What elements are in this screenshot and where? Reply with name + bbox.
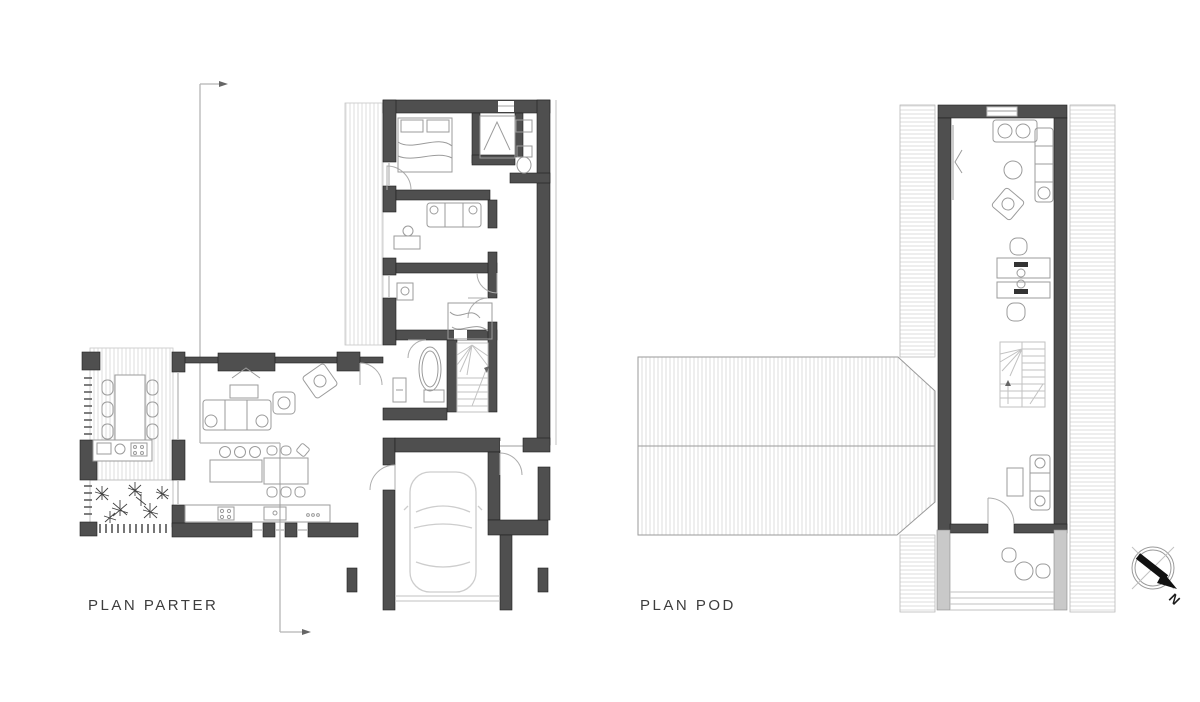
floor-plan-sheet: N PLAN PARTER PLAN POD	[0, 0, 1200, 702]
attic-lounge-furniture	[953, 120, 1053, 255]
living-room-furniture	[203, 363, 338, 430]
double-bed	[398, 118, 452, 172]
plan-pod	[638, 105, 1115, 612]
stairs-pod	[1000, 342, 1045, 407]
desk-and-chair	[394, 226, 420, 249]
balcony-furniture	[1002, 548, 1050, 580]
kitchen-dining-furniture	[185, 443, 330, 522]
walls-pod	[937, 105, 1067, 610]
study-sofa	[427, 203, 481, 227]
eaves-strip-right	[1070, 105, 1115, 612]
compass-icon: N	[1132, 547, 1183, 608]
carport-pillar-right	[538, 568, 548, 592]
eaves-strip-left-bottom	[900, 535, 935, 612]
compass-letter: N	[1166, 591, 1183, 608]
terrace-steps	[950, 592, 1054, 610]
washbasin-small-room	[397, 283, 413, 300]
tv-room-furniture	[1007, 455, 1050, 510]
carport-pillar-left	[347, 568, 357, 592]
bathroom-fixtures	[393, 347, 444, 402]
plan-parter	[80, 81, 556, 635]
wardrobe	[480, 116, 515, 158]
roof-left	[638, 357, 935, 535]
garage-car	[404, 472, 482, 592]
garage-door	[395, 596, 500, 601]
stairs-parter	[457, 343, 489, 412]
planting-bed	[95, 482, 169, 523]
side-terrace-hatch	[345, 103, 383, 345]
pod-interior-door	[988, 498, 1014, 524]
plan-parter-label: PLAN PARTER	[88, 597, 218, 614]
twin-desks	[997, 258, 1050, 321]
floor-plan-canvas: N PLAN PARTER PLAN POD	[0, 0, 1200, 702]
eaves-strip-left-top	[900, 105, 935, 357]
plan-pod-label: PLAN POD	[640, 597, 736, 614]
outdoor-kitchen-counter	[93, 440, 152, 461]
